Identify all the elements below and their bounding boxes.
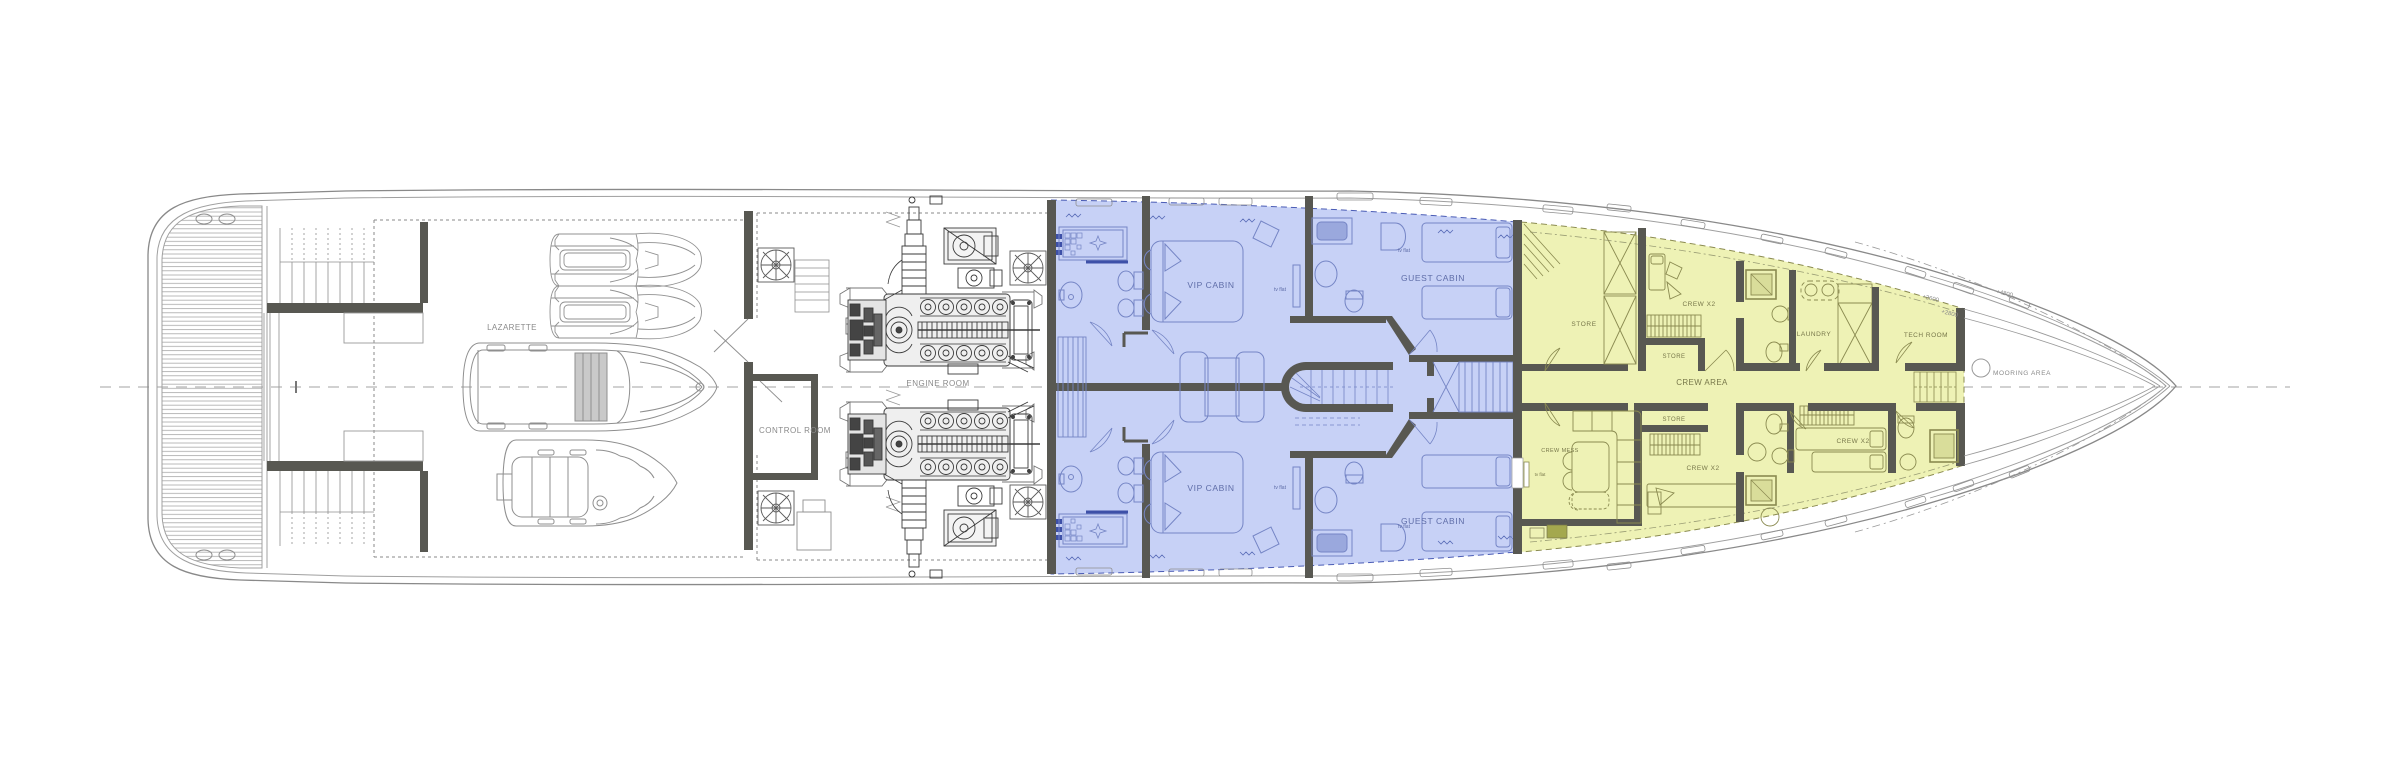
svg-text:CREW X2: CREW X2 <box>1836 438 1869 445</box>
svg-text:tv flat: tv flat <box>1535 472 1547 477</box>
svg-text:STORE: STORE <box>1662 417 1685 423</box>
svg-text:tv flat: tv flat <box>1398 524 1411 530</box>
svg-text:tv flat: tv flat <box>1398 248 1411 254</box>
svg-text:TECH ROOM: TECH ROOM <box>1904 332 1948 339</box>
svg-text:MOORING AREA: MOORING AREA <box>1993 370 2051 377</box>
svg-text:GUEST CABIN: GUEST CABIN <box>1401 516 1465 526</box>
svg-text:CONTROL ROOM: CONTROL ROOM <box>759 426 831 435</box>
svg-text:STORE: STORE <box>1571 321 1596 328</box>
svg-text:tv flat: tv flat <box>1274 485 1287 491</box>
svg-text:VIP CABIN: VIP CABIN <box>1187 483 1234 493</box>
svg-text:CREW X2: CREW X2 <box>1682 301 1715 308</box>
svg-text:VIP CABIN: VIP CABIN <box>1187 280 1234 290</box>
svg-text:LAZARETTE: LAZARETTE <box>487 323 537 332</box>
svg-text:tv flat: tv flat <box>1274 287 1287 293</box>
svg-text:CREW AREA: CREW AREA <box>1676 378 1728 387</box>
svg-text:STORE: STORE <box>1662 354 1685 360</box>
svg-text:CREW X2: CREW X2 <box>1686 465 1719 472</box>
svg-text:LAUNDRY: LAUNDRY <box>1797 331 1832 338</box>
svg-text:GUEST CABIN: GUEST CABIN <box>1401 273 1465 283</box>
svg-text:CREW MESS: CREW MESS <box>1541 448 1579 454</box>
svg-text:ENGINE ROOM: ENGINE ROOM <box>906 379 969 388</box>
